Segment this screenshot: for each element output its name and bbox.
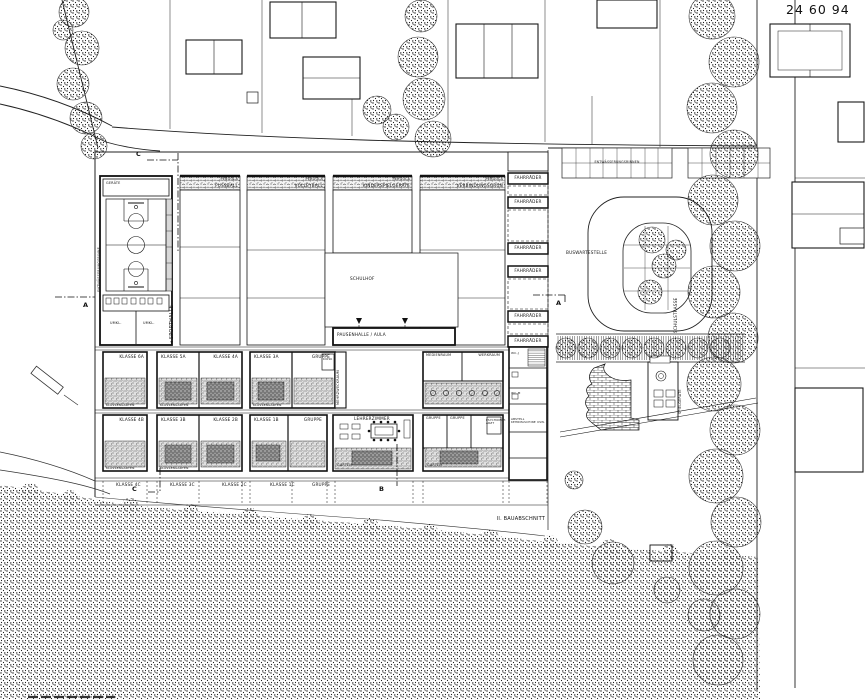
aula-label: PAUSENHALLE / AULA [337,333,386,337]
section-a-right: A [556,300,561,307]
pergola-label-2: PERGOLA [305,178,323,181]
class-a3-label: KLASSE 4A [213,355,238,359]
klassengarten-label-5: KLASSENGARTEN [160,467,189,470]
field-spielgeraete-label: KINDERSPIELGERÄTE [363,184,410,188]
class-b5-label: GRUPPE [304,418,322,422]
fahrraeder-label-6: FAHRRÄDER [508,339,548,343]
plan-drawing [0,0,865,700]
section-b: B [379,486,384,493]
sporthalle-arrow-icon: ◄ [169,341,175,345]
sporthalle-label: ◄ SPORTHALLE [170,305,175,345]
abstell-label: ABSTELL KEHRMASCHINE USW. [511,418,545,424]
class-b3-label: KLASSE 2B [213,418,238,422]
strasse-label: SCHULSTRASSE [674,298,678,333]
wcm-label: WC-M [511,392,521,395]
phase-label: II. BAUABSCHNITT [497,517,545,522]
class-c5-label: GRUPPE [312,483,330,487]
sports-fields [180,176,505,345]
bus-stop-label: BUSWARTESTELLE [566,251,607,255]
section-c-top: C [136,151,141,158]
fahrraeder-label-4: FAHRRÄDER [508,269,548,273]
section-c-bottom: C [132,486,137,493]
umkl-left-label: UMKL. [110,322,122,325]
section-a-left: A [83,302,88,309]
fahrraeder-label-5: FAHRRÄDER [508,314,548,318]
entwaesserung-label: ENTWÄSSERUNGSRINNEN [562,161,672,164]
dock [31,366,78,405]
klassengarten-label-2: KLASSENGARTEN [160,404,189,407]
gruppe-label-1: GRUPPE [426,417,441,420]
sporthalle-building [100,176,172,345]
spielgeraete-vert-label: SPIELGERÄTE [679,389,682,414]
klassengarten-label-1: KLASSENGARTEN [106,404,135,407]
class-b1-label: KLASSE 4B [119,418,144,422]
kiosk-label: KIOSK [323,358,332,361]
lehrerzimmer-label: LEHRERZIMMER [354,417,390,421]
klassengarten-label-3: KLASSENGARTEN [253,404,282,407]
fahrraeder-label-2: FAHRRÄDER [508,200,548,204]
field-fussball-label: FUSSBALL [215,184,238,188]
class-a2-label: KLASSE 5A [161,355,186,359]
bus-loop [588,197,712,331]
class-c1-label: KLASSE 4C [116,483,141,487]
klassengarten-label-4: KLASSENGARTEN [106,467,135,470]
class-c2-label: KLASSE 3C [170,483,195,487]
geraete-label: GERÄTE [106,182,120,185]
pergola-label-3: PERGOLA [392,178,410,181]
fahrraeder-label-3: FAHRRÄDER [508,246,548,250]
site-plan-sheet: 24 60 94 ◄ SPORTHALLE GERÄTE ENTWÄSSERUN… [0,0,865,700]
drain-label: ENTWÄSSERUNGSRINNE [98,247,101,292]
werkraum-label: WERKRAUM [478,354,500,357]
garten-label-1: GARTEN [337,464,352,467]
sheet-number: 24 60 94 [786,4,850,17]
schulhof-label: SCHULHOF [350,277,375,281]
field-verbindung-label: VERBINDUNGSGRÜN [457,184,503,188]
gruppe-label-2: GRUPPE [450,417,465,420]
class-b2-label: KLASSE 3B [161,418,186,422]
class-c4-label: KLASSE 1C [270,483,295,487]
umkl-right-label: UMKL. [143,322,155,325]
wcj-label: WC-J [511,352,519,355]
field-volleyball-label: VOLLEYBALL [295,184,323,188]
mehrzweck-label: MEHRZWECKRAUM [337,370,340,405]
class-a1-label: KLASSE 6A [119,355,144,359]
arzt-label: PSYCHOMOT. ARZT [486,419,502,425]
class-a4-label: KLASSE 3A [254,355,279,359]
class-b4-label: KLASSE 1B [254,418,279,422]
pergola-label-4: PERGOLA [485,178,503,181]
medienraum-label: MEDIENRAUM [426,354,451,357]
pergola-label-1: PERGOLA [220,178,238,181]
garten-label-2: GARTEN [427,464,442,467]
class-c3-label: KLASSE 2C [222,483,247,487]
fahrraeder-label-1: FAHRRÄDER [508,176,548,180]
